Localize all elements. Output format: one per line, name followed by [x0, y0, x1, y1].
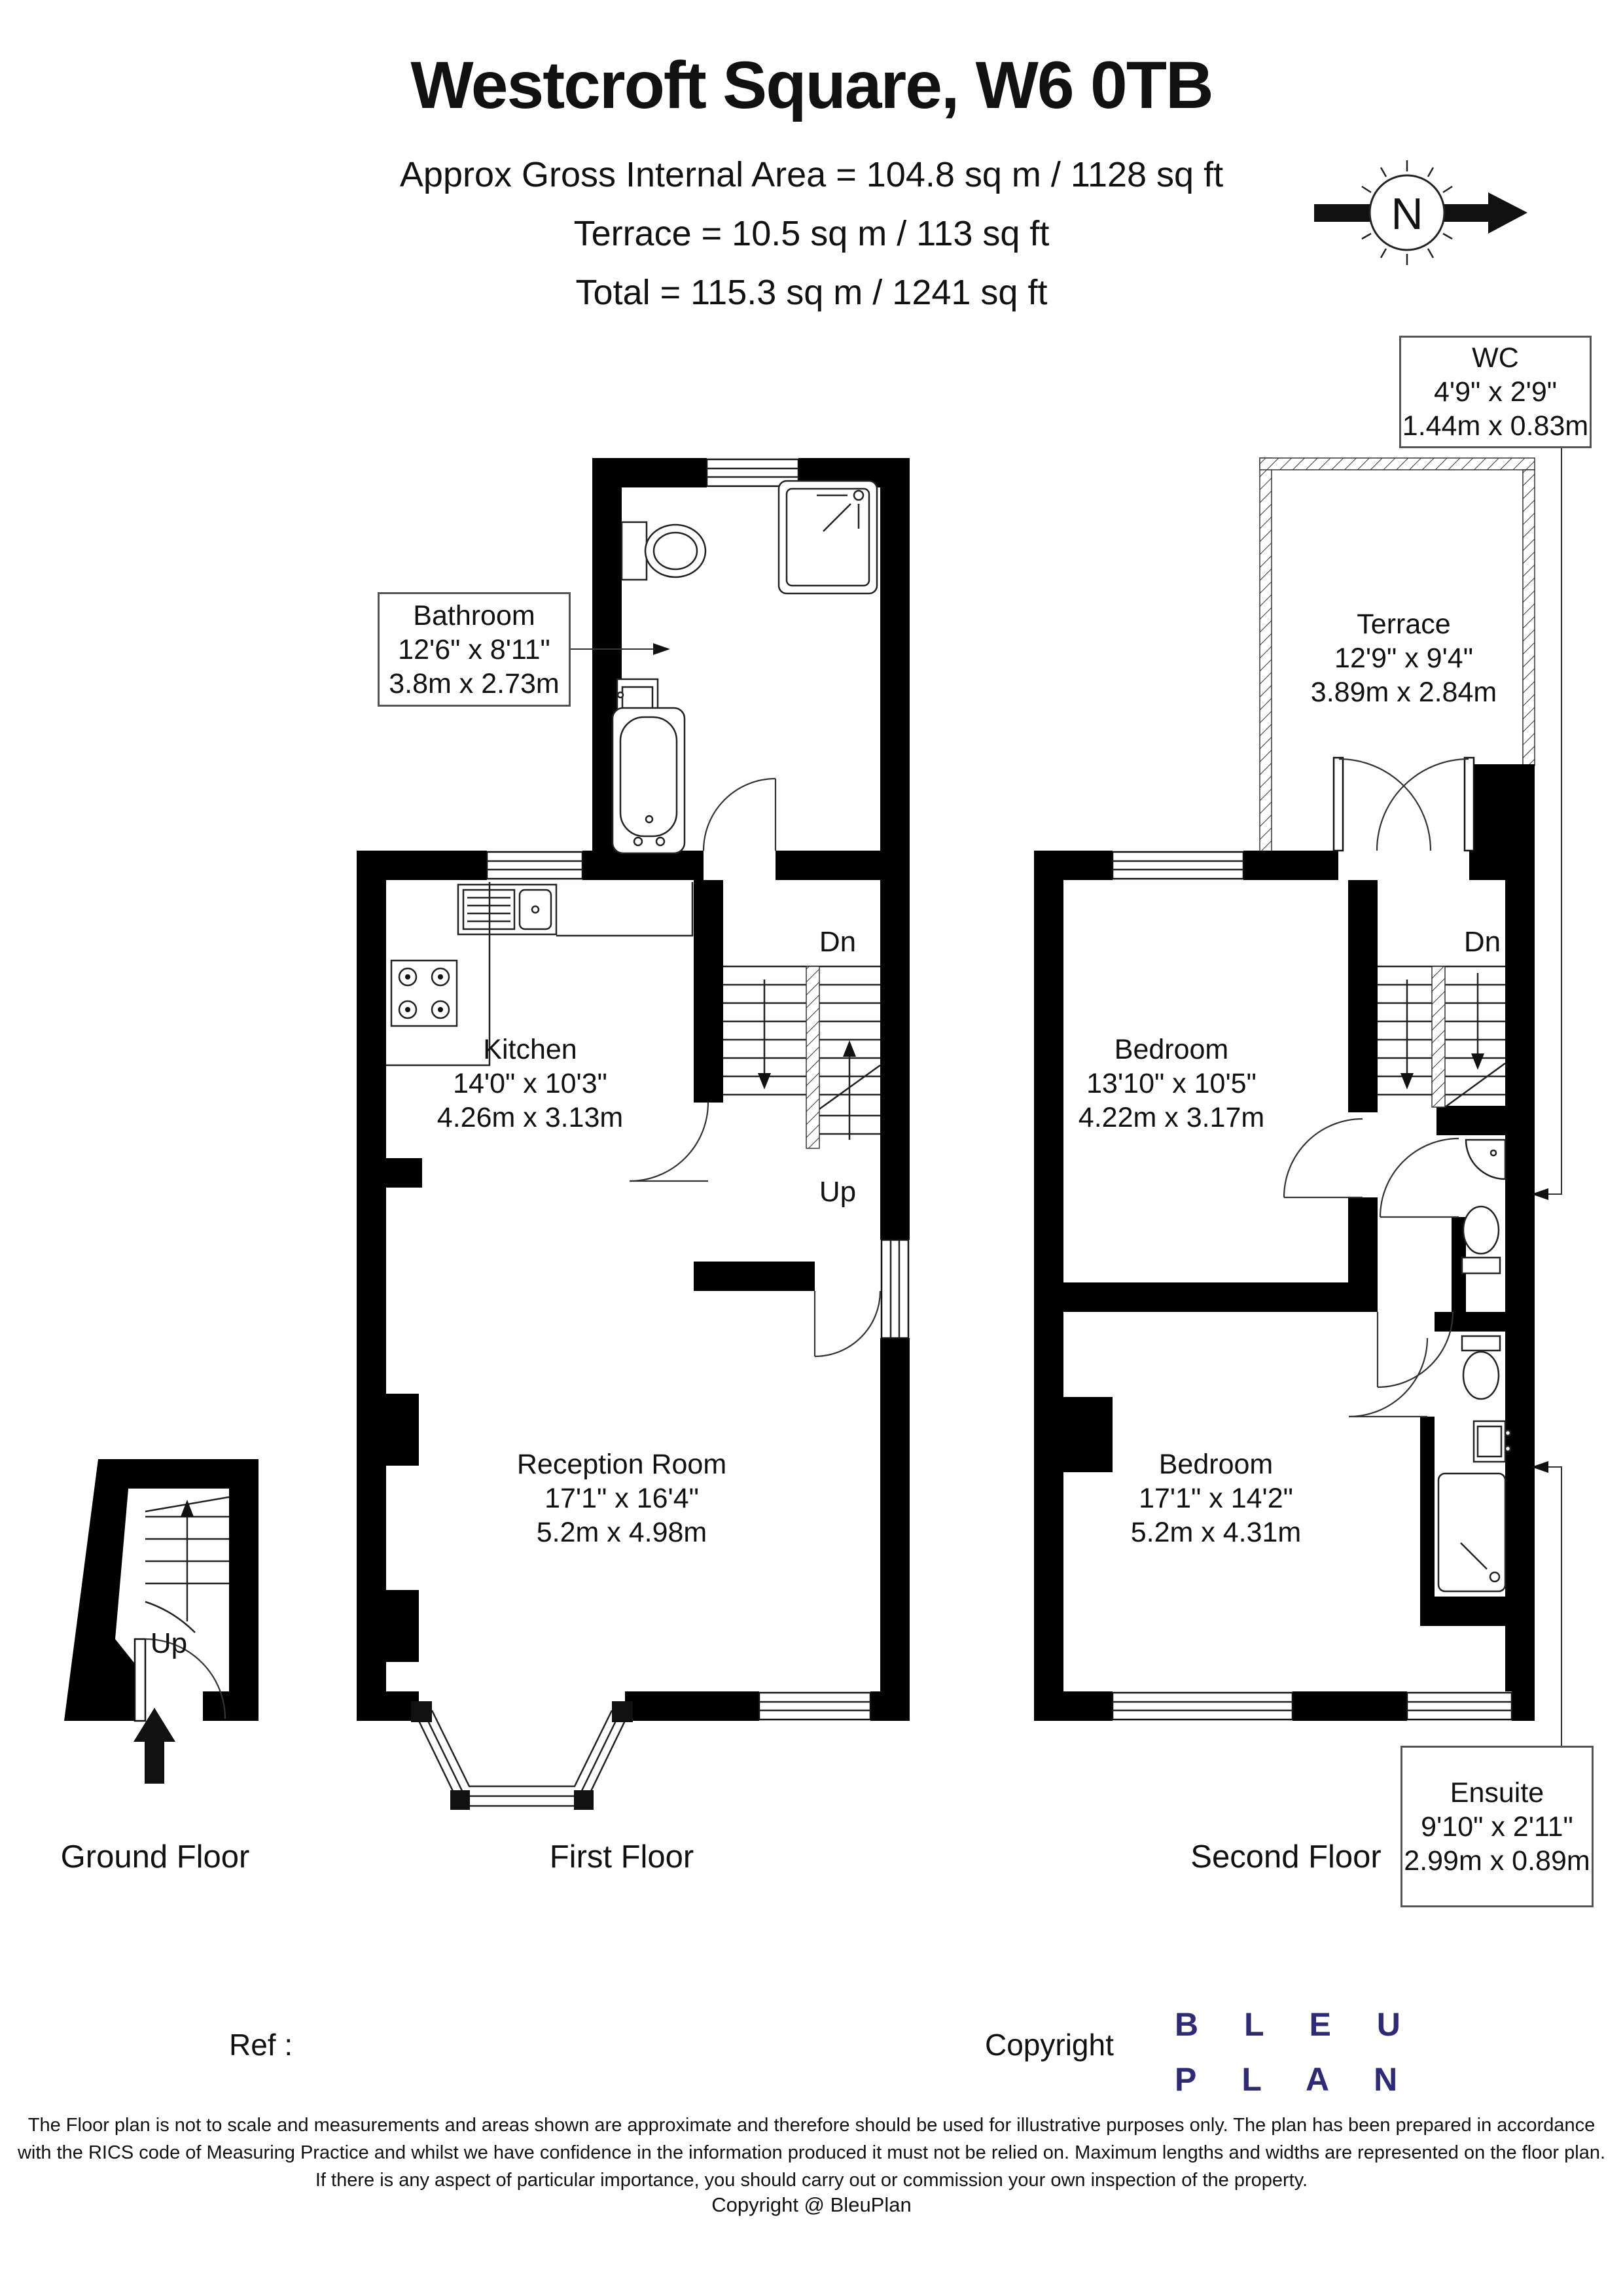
shower-icon — [1438, 1474, 1505, 1591]
ensuite-wall — [1420, 1417, 1435, 1597]
stair-label-up-ground: Up — [151, 1627, 187, 1660]
disclaimer-line-1: The Floor plan is not to scale and measu… — [0, 2115, 1623, 2136]
first-floor-stairs — [723, 966, 880, 1148]
window — [1113, 1693, 1293, 1720]
window — [487, 852, 582, 879]
floor-label-ground: Ground Floor — [61, 1839, 250, 1875]
second-floor-stairs — [1378, 966, 1505, 1107]
terrace-doors — [1334, 758, 1474, 851]
room-dim-metric: 2.99m x 0.89m — [1402, 1844, 1592, 1878]
room-dim-imperial: 12'6" x 8'11" — [380, 633, 569, 667]
toilet-icon — [622, 522, 705, 580]
stair-label-dn-first: Dn — [819, 926, 856, 959]
room-dim-imperial: 13'10" x 10'5" — [1079, 1067, 1264, 1101]
window — [1113, 852, 1243, 879]
room-dim-metric: 3.89m x 2.84m — [1311, 675, 1497, 709]
toilet-icon — [1462, 1336, 1500, 1399]
room-name: Terrace — [1311, 607, 1497, 641]
bathtub-icon — [613, 708, 685, 853]
room-label-wc: WC 4'9" x 2'9" 1.44m x 0.83m — [1399, 336, 1592, 448]
room-name: Ensuite — [1402, 1776, 1592, 1810]
logo-line-2: P L A N — [1175, 2052, 1419, 2107]
bedroom1-wall — [1348, 880, 1378, 1112]
toilet-icon — [1462, 1207, 1500, 1273]
compass-north-label: N — [1391, 188, 1423, 239]
room-dim-imperial: 17'1" x 14'2" — [1131, 1481, 1302, 1515]
kitchen-sink — [458, 885, 556, 934]
copyright-line: Copyright @ BleuPlan — [0, 2193, 1623, 2217]
bedroom-divider-wall — [1063, 1282, 1378, 1312]
bedroom1-door — [1284, 1119, 1363, 1197]
total-area-line: Total = 115.3 sq m / 1241 sq ft — [0, 272, 1623, 313]
kitchen-stair-wall — [694, 880, 723, 1103]
room-dim-imperial: 12'9" x 9'4" — [1311, 641, 1497, 675]
basin-icon — [1474, 1421, 1510, 1462]
hall-reception-wall — [694, 1262, 815, 1291]
floor-label-second: Second Floor — [1190, 1839, 1381, 1875]
stair-label-up-first: Up — [819, 1176, 856, 1209]
corner-basin-icon — [1466, 1140, 1505, 1179]
room-dim-metric: 4.22m x 3.17m — [1079, 1101, 1264, 1135]
floor-label-first: First Floor — [550, 1839, 694, 1875]
ground-floor-plan — [64, 1459, 259, 1784]
logo-line-1: B L E U — [1175, 1997, 1419, 2052]
floorplan-sheet: Westcroft Square, W6 0TB Approx Gross In… — [0, 0, 1623, 2296]
room-name: Bedroom — [1079, 1033, 1264, 1067]
shower-icon — [779, 481, 877, 593]
room-name: WC — [1401, 341, 1590, 375]
room-dim-imperial: 4'9" x 2'9" — [1401, 375, 1590, 409]
slanted-wall — [64, 1459, 136, 1721]
disclaimer-line-3: If there is any aspect of particular imp… — [0, 2170, 1623, 2191]
hob — [391, 961, 457, 1026]
room-dim-imperial: 17'1" x 16'4" — [517, 1481, 726, 1515]
room-dim-metric: 3.8m x 2.73m — [380, 667, 569, 701]
room-name: Bedroom — [1131, 1447, 1302, 1481]
chimney-stub — [1063, 1397, 1113, 1472]
room-dim-imperial: 9'10" x 2'11" — [1402, 1810, 1592, 1844]
understairs-wall — [1436, 1106, 1505, 1135]
floorplan-graphics — [0, 0, 1623, 2296]
ref-label: Ref : — [229, 2027, 293, 2062]
room-label-bathroom: Bathroom 12'6" x 8'11" 3.8m x 2.73m — [378, 592, 571, 707]
gross-area-line: Approx Gross Internal Area = 104.8 sq m … — [0, 154, 1623, 195]
room-label-kitchen: Kitchen 14'0" x 10'3" 4.26m x 3.13m — [437, 1033, 623, 1135]
terrace-area-line: Terrace = 10.5 sq m / 113 sq ft — [0, 213, 1623, 254]
page-title: Westcroft Square, W6 0TB — [0, 47, 1623, 124]
room-dim-metric: 5.2m x 4.31m — [1131, 1515, 1302, 1549]
room-dim-metric: 4.26m x 3.13m — [437, 1101, 623, 1135]
reception-door — [815, 1291, 880, 1356]
copyright-label: Copyright — [985, 2027, 1114, 2062]
disclaimer-line-2: with the RICS code of Measuring Practice… — [0, 2142, 1623, 2164]
chimney-stub — [386, 1590, 419, 1662]
room-label-bedroom-top: Bedroom 13'10" x 10'5" 4.22m x 3.17m — [1079, 1033, 1264, 1135]
window — [1407, 1693, 1512, 1720]
kitchen-door — [630, 1103, 708, 1181]
room-name: Kitchen — [437, 1033, 623, 1067]
bathroom-door — [704, 779, 776, 851]
chimney-stub — [386, 1394, 419, 1466]
room-name: Bathroom — [380, 599, 569, 633]
room-dim-metric: 5.2m x 4.98m — [517, 1515, 726, 1549]
room-dim-imperial: 14'0" x 10'3" — [437, 1067, 623, 1101]
room-label-terrace: Terrace 12'9" x 9'4" 3.89m x 2.84m — [1311, 607, 1497, 709]
room-name: Reception Room — [517, 1447, 726, 1481]
room-dim-metric: 1.44m x 0.83m — [1401, 409, 1590, 443]
wc-door — [1380, 1139, 1459, 1217]
room-label-reception: Reception Room 17'1" x 16'4" 5.2m x 4.98… — [517, 1447, 726, 1549]
room-label-bedroom-bottom: Bedroom 17'1" x 14'2" 5.2m x 4.31m — [1131, 1447, 1302, 1549]
wc-ensuite-divider — [1435, 1312, 1505, 1332]
bay-window — [411, 1701, 633, 1810]
bleuplan-logo: B L E U P L A N — [1175, 1997, 1419, 2107]
window — [759, 1693, 870, 1720]
ground-floor-stairs — [145, 1497, 229, 1633]
stair-label-dn-second: Dn — [1464, 926, 1501, 959]
room-label-ensuite: Ensuite 9'10" x 2'11" 2.99m x 0.89m — [1400, 1746, 1594, 1907]
kitchen-reception-wall-stub — [386, 1158, 422, 1188]
window — [882, 1240, 908, 1338]
